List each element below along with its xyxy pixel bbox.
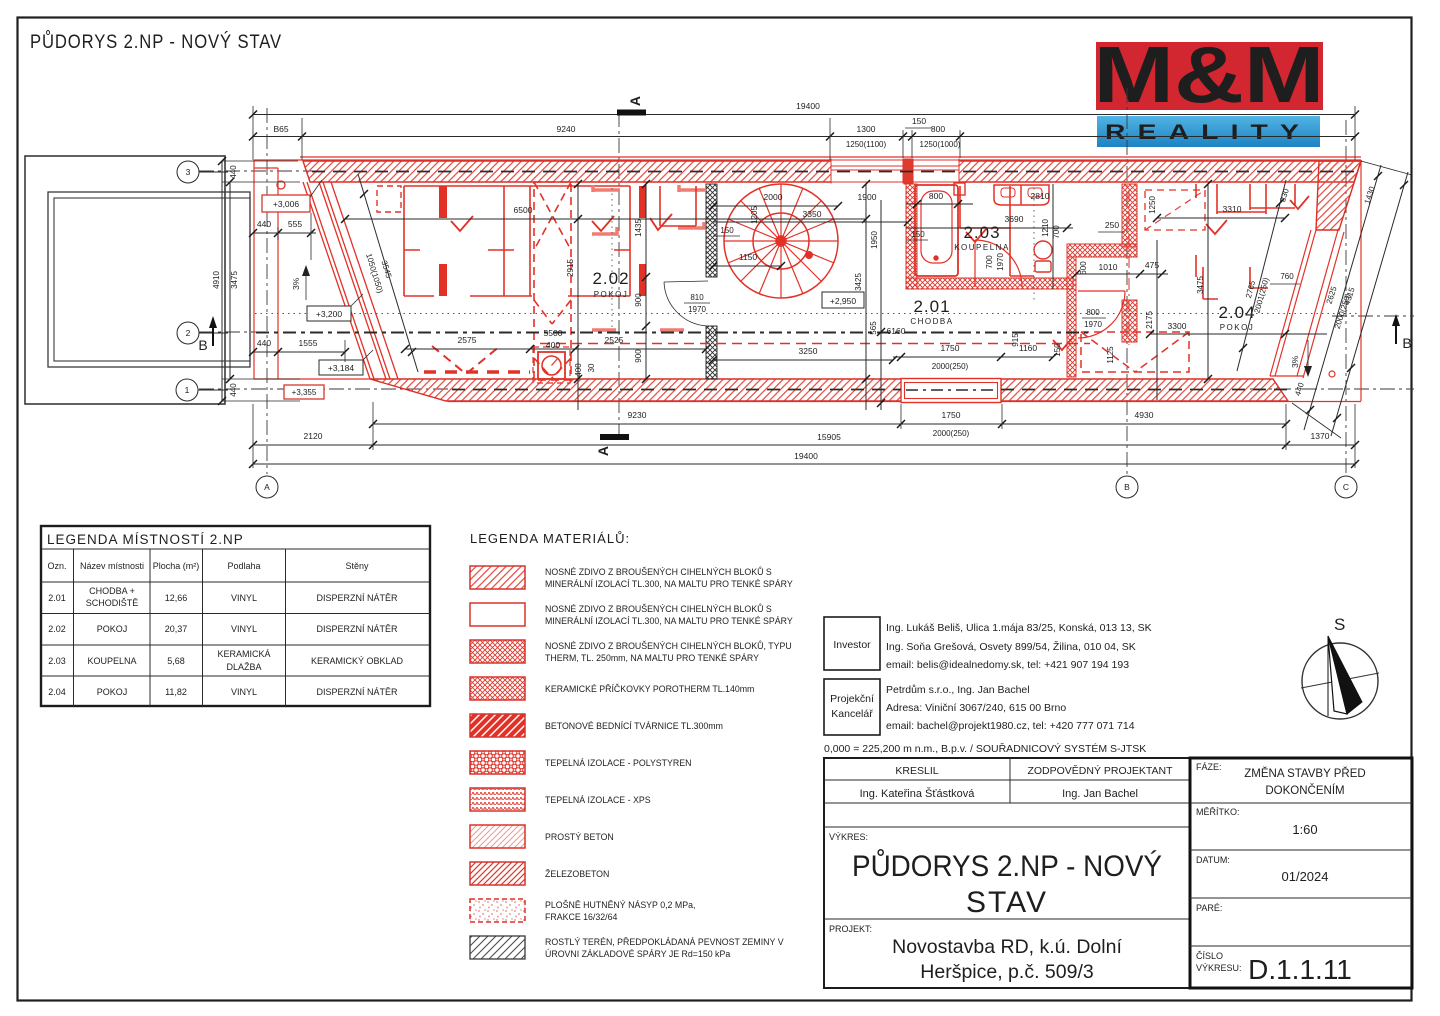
svg-text:1205: 1205 [750,206,759,224]
svg-text:DOKONČENÍM: DOKONČENÍM [1265,784,1344,797]
svg-text:Kancelář: Kancelář [831,708,873,720]
svg-text:1435: 1435 [634,219,643,237]
svg-text:2810: 2810 [1031,191,1050,201]
svg-text:PROSTÝ BETON: PROSTÝ BETON [545,832,614,842]
svg-text:400: 400 [546,340,560,350]
svg-text:NOSNÉ ZDIVO Z BROUŠENÝCH CIHEL: NOSNÉ ZDIVO Z BROUŠENÝCH CIHELNÝCH BLOKŮ… [545,566,772,577]
svg-text:440: 440 [257,219,271,229]
svg-text:KERAMICKÁ: KERAMICKÁ [217,649,270,659]
svg-text:20,37: 20,37 [165,624,188,634]
svg-text:150: 150 [1053,343,1062,357]
svg-text:Heršpice, p.č. 509/3: Heršpice, p.č. 509/3 [920,961,1093,983]
svg-text:1300: 1300 [857,124,876,134]
svg-text:19400: 19400 [796,101,820,111]
svg-text:3690: 3690 [1005,214,1024,224]
svg-text:3475: 3475 [230,271,239,289]
svg-text:PLOŠNĚ HUTNĚNÝ NÁSYP 0,2 MPa,: PLOŠNĚ HUTNĚNÝ NÁSYP 0,2 MPa, [545,900,695,910]
svg-text:email: bachel@projekt1980.cz,: email: bachel@projekt1980.cz, tel: +420 … [886,720,1135,732]
svg-text:150: 150 [720,226,734,235]
svg-text:3310: 3310 [1223,204,1242,214]
svg-text:1950: 1950 [870,231,879,249]
svg-text:2.03: 2.03 [963,223,1000,242]
svg-text:B: B [198,337,207,353]
svg-text:A: A [627,96,643,106]
svg-text:Novostavba RD, k.ú. Dolní: Novostavba RD, k.ú. Dolní [892,936,1122,958]
svg-text:Petrdům s.r.o., Ing. Jan Bache: Petrdům s.r.o., Ing. Jan Bachel [886,684,1030,696]
svg-text:Ing. Lukáš Beliš, Ulica 1.mája: Ing. Lukáš Beliš, Ulica 1.mája 83/25, Ko… [886,622,1152,634]
svg-text:3%: 3% [291,277,301,290]
svg-text:440: 440 [229,165,238,179]
svg-text:B: B [1124,482,1130,492]
svg-text:B65: B65 [273,124,288,134]
svg-text:+3,184: +3,184 [328,363,355,373]
svg-text:FÁZE:: FÁZE: [1196,762,1222,772]
svg-text:+3,355: +3,355 [292,388,317,397]
svg-text:3475: 3475 [1196,276,1205,294]
svg-text:600: 600 [1079,261,1088,275]
svg-text:ROSTLÝ TERÉN, PŘEDPOKLÁDANÁ PE: ROSTLÝ TERÉN, PŘEDPOKLÁDANÁ PEVNOST ZEMI… [545,937,784,947]
svg-text:1970: 1970 [688,305,706,314]
svg-text:3300: 3300 [1168,321,1187,331]
svg-text:900: 900 [634,349,643,363]
svg-text:M&M: M&M [1094,30,1325,119]
svg-text:900: 900 [634,293,643,307]
svg-text:LEGENDA MÍSTNOSTÍ 2.NP: LEGENDA MÍSTNOSTÍ 2.NP [47,532,244,547]
svg-text:PŮDORYS 2.NP - NOVÝ STAV: PŮDORYS 2.NP - NOVÝ STAV [30,31,282,53]
svg-text:6160: 6160 [887,326,906,336]
svg-text:1750: 1750 [941,343,960,353]
svg-text:5,68: 5,68 [167,656,185,666]
svg-text:9230: 9230 [628,410,647,420]
svg-text:ZMĚNA STAVBY PŘED: ZMĚNA STAVBY PŘED [1244,767,1365,780]
svg-text:+2,950: +2,950 [830,296,857,306]
svg-text:VINYL: VINYL [231,593,257,603]
svg-text:2: 2 [186,328,191,338]
svg-text:A: A [595,446,611,456]
svg-text:S: S [1334,615,1345,634]
svg-text:555: 555 [288,219,302,229]
svg-text:Plocha (m²): Plocha (m²) [153,561,200,571]
svg-text:REALITY: REALITY [1105,121,1311,144]
svg-text:ŽELEZOBETON: ŽELEZOBETON [545,869,609,879]
svg-text:440: 440 [257,338,271,348]
svg-text:1:60: 1:60 [1292,822,1317,837]
svg-text:MINERÁLNÍ IZOLACÍ TL.300, NA M: MINERÁLNÍ IZOLACÍ TL.300, NA MALTU PRO T… [545,579,793,589]
svg-text:CHODBA +: CHODBA + [89,586,135,596]
svg-text:700: 700 [985,255,994,269]
svg-text:POKOJ: POKOJ [97,624,128,634]
svg-text:15905: 15905 [817,432,841,442]
svg-text:800: 800 [929,191,943,201]
svg-text:150: 150 [911,230,925,239]
svg-text:MINERÁLNÍ IZOLACÍ TL.300, NA M: MINERÁLNÍ IZOLACÍ TL.300, NA MALTU PRO T… [545,616,793,626]
svg-text:1370: 1370 [1311,431,1330,441]
svg-text:11,82: 11,82 [165,687,187,697]
svg-text:3%: 3% [1290,355,1300,368]
svg-text:12,66: 12,66 [165,593,188,603]
svg-text:B: B [1402,335,1411,351]
svg-text:0,000 = 225,200 m n.m., B.p.v.: 0,000 = 225,200 m n.m., B.p.v. / SOUŘADN… [824,742,1146,755]
svg-text:2525: 2525 [605,335,624,345]
svg-text:800: 800 [1086,308,1100,317]
svg-text:KRESLIL: KRESLIL [895,765,938,777]
svg-text:Stěny: Stěny [345,561,369,571]
svg-text:BETONOVÉ BEDNÍCÍ TVÁRNICE TL.3: BETONOVÉ BEDNÍCÍ TVÁRNICE TL.300mm [545,721,723,731]
svg-text:TEPELNÁ IZOLACE - XPS: TEPELNÁ IZOLACE - XPS [545,795,651,805]
svg-text:1750: 1750 [942,410,961,420]
svg-text:VINYL: VINYL [231,624,257,634]
svg-text:Název místnosti: Název místnosti [80,561,144,571]
svg-text:250: 250 [1105,220,1119,230]
svg-text:2175: 2175 [1145,311,1154,329]
svg-text:1125: 1125 [1106,346,1115,364]
svg-text:4910: 4910 [212,271,221,289]
svg-text:1: 1 [185,385,190,395]
svg-text:30: 30 [587,363,596,372]
svg-text:1150: 1150 [739,252,758,262]
svg-text:PŮDORYS 2.NP - NOVÝ: PŮDORYS 2.NP - NOVÝ [852,849,1162,883]
svg-text:DLAŽBA: DLAŽBA [226,662,261,672]
svg-text:PROJEKT:: PROJEKT: [829,924,872,934]
svg-text:POKOJ: POKOJ [594,290,629,299]
svg-text:D.1.1.11: D.1.1.11 [1248,954,1352,985]
svg-text:Ing. Soňa Grešová, Osvety 899/: Ing. Soňa Grešová, Osvety 899/54, Žilina… [886,640,1136,653]
svg-text:+3,200: +3,200 [316,309,343,319]
svg-text:1250(1100): 1250(1100) [846,140,887,149]
svg-text:9240: 9240 [557,124,576,134]
svg-text:1010: 1010 [1099,262,1118,272]
svg-text:Ing. Kateřina Šťástková: Ing. Kateřina Šťástková [860,787,976,800]
svg-text:Investor: Investor [833,639,871,651]
svg-text:ČÍSLO: ČÍSLO [1196,951,1223,961]
svg-text:2.02: 2.02 [592,269,629,288]
svg-text:2.03: 2.03 [48,656,66,666]
svg-text:2.02: 2.02 [48,624,66,634]
svg-text:3: 3 [186,167,191,177]
svg-text:THERM, TL. 250mm, NA MALTU PRO: THERM, TL. 250mm, NA MALTU PRO TENKÉ SPÁ… [545,653,759,663]
svg-text:Ing. Jan Bachel: Ing. Jan Bachel [1062,788,1138,800]
svg-text:STAV: STAV [966,886,1048,919]
svg-text:1250: 1250 [1148,196,1157,214]
svg-text:Podlaha: Podlaha [227,561,260,571]
svg-text:KOUPELNA: KOUPELNA [954,243,1010,252]
svg-text:email: belis@idealnedomy.sk, t: email: belis@idealnedomy.sk, tel: +421 9… [886,659,1129,671]
svg-text:MĚŘÍTKO:: MĚŘÍTKO: [1196,807,1240,817]
svg-text:Projekční: Projekční [830,693,874,705]
svg-text:1210: 1210 [1041,219,1050,237]
svg-text:C: C [1343,482,1349,492]
svg-text:1555: 1555 [299,338,318,348]
svg-text:Adresa: Viniční 3067/240, 615: Adresa: Viniční 3067/240, 615 00 Brno [886,702,1066,714]
svg-text:01/2024: 01/2024 [1282,869,1329,884]
svg-text:1250(1000): 1250(1000) [920,140,961,149]
svg-text:440: 440 [229,383,238,397]
svg-text:ZODPOVĚDNÝ PROJEKTANT: ZODPOVĚDNÝ PROJEKTANT [1027,764,1173,777]
svg-text:VINYL: VINYL [231,687,257,697]
svg-text:5500: 5500 [544,328,563,338]
svg-text:1900: 1900 [858,192,877,202]
svg-text:NOSNÉ ZDIVO Z BROUŠENÝCH CIHEL: NOSNÉ ZDIVO Z BROUŠENÝCH CIHELNÝCH BLOKŮ… [545,603,772,614]
svg-text:150: 150 [912,116,926,126]
svg-text:2000: 2000 [764,192,783,202]
svg-text:DATUM:: DATUM: [1196,855,1230,865]
svg-text:A: A [264,482,270,492]
svg-text:FRAKCE 16/32/64: FRAKCE 16/32/64 [545,912,617,922]
svg-text:NOSNÉ ZDIVO Z BROUŠENÝCH CIHEL: NOSNÉ ZDIVO Z BROUŠENÝCH CIHELNÝCH BLOKŮ… [545,640,792,651]
svg-text:POKOJ: POKOJ [97,687,128,697]
svg-text:3350: 3350 [803,209,822,219]
svg-text:2000(250): 2000(250) [933,429,970,438]
svg-text:KERAMICKÉ PŘÍČKOVKY POROTHERM: KERAMICKÉ PŘÍČKOVKY POROTHERM TL.140mm [545,684,754,694]
svg-text:ÚROVNI ZÁKLADOVÉ SPÁRY JE Rd=1: ÚROVNI ZÁKLADOVÉ SPÁRY JE Rd=150 kPa [545,949,730,959]
svg-text:3250: 3250 [799,346,818,356]
svg-text:CHODBA: CHODBA [910,317,953,326]
svg-text:1160: 1160 [1019,343,1038,353]
svg-text:400: 400 [574,363,583,377]
svg-text:PARÉ:: PARÉ: [1196,903,1222,913]
svg-text:1970: 1970 [1084,320,1102,329]
svg-text:2.01: 2.01 [913,297,950,316]
svg-text:LEGENDA MATERIÁLŮ:: LEGENDA MATERIÁLŮ: [470,531,630,546]
svg-text:800: 800 [931,124,945,134]
svg-text:KOUPELNA: KOUPELNA [87,656,136,666]
svg-text:DISPERZNÍ NÁTĚR: DISPERZNÍ NÁTĚR [316,593,398,603]
svg-text:2000(250): 2000(250) [932,362,969,371]
svg-text:6500: 6500 [514,205,533,215]
svg-text:SCHODIŠTĚ: SCHODIŠTĚ [86,598,139,608]
svg-text:19400: 19400 [794,451,818,461]
svg-text:2.01: 2.01 [48,593,66,603]
svg-text:1970: 1970 [996,253,1005,271]
svg-text:565: 565 [869,321,878,335]
svg-text:3425: 3425 [854,273,863,291]
svg-text:TEPELNÁ IZOLACE - POLYSTYREN: TEPELNÁ IZOLACE - POLYSTYREN [545,758,692,768]
svg-text:KERAMICKÝ OBKLAD: KERAMICKÝ OBKLAD [311,656,404,666]
svg-text:2.04: 2.04 [48,687,66,697]
svg-text:DISPERZNÍ NÁTĚR: DISPERZNÍ NÁTĚR [316,687,398,697]
svg-text:2915: 2915 [566,259,575,277]
svg-text:DISPERZNÍ NÁTĚR: DISPERZNÍ NÁTĚR [316,624,398,634]
svg-text:2575: 2575 [458,335,477,345]
svg-text:700: 700 [1052,225,1061,239]
svg-text:4930: 4930 [1135,410,1154,420]
svg-text:760: 760 [1280,272,1294,281]
svg-text:VÝKRESU:: VÝKRESU: [1196,963,1242,973]
svg-text:VÝKRES:: VÝKRES: [829,832,868,842]
svg-text:+3,006: +3,006 [273,199,300,209]
svg-text:810: 810 [690,293,704,302]
svg-text:915: 915 [1011,333,1020,347]
svg-text:Ozn.: Ozn. [47,561,66,571]
svg-text:2120: 2120 [304,431,323,441]
